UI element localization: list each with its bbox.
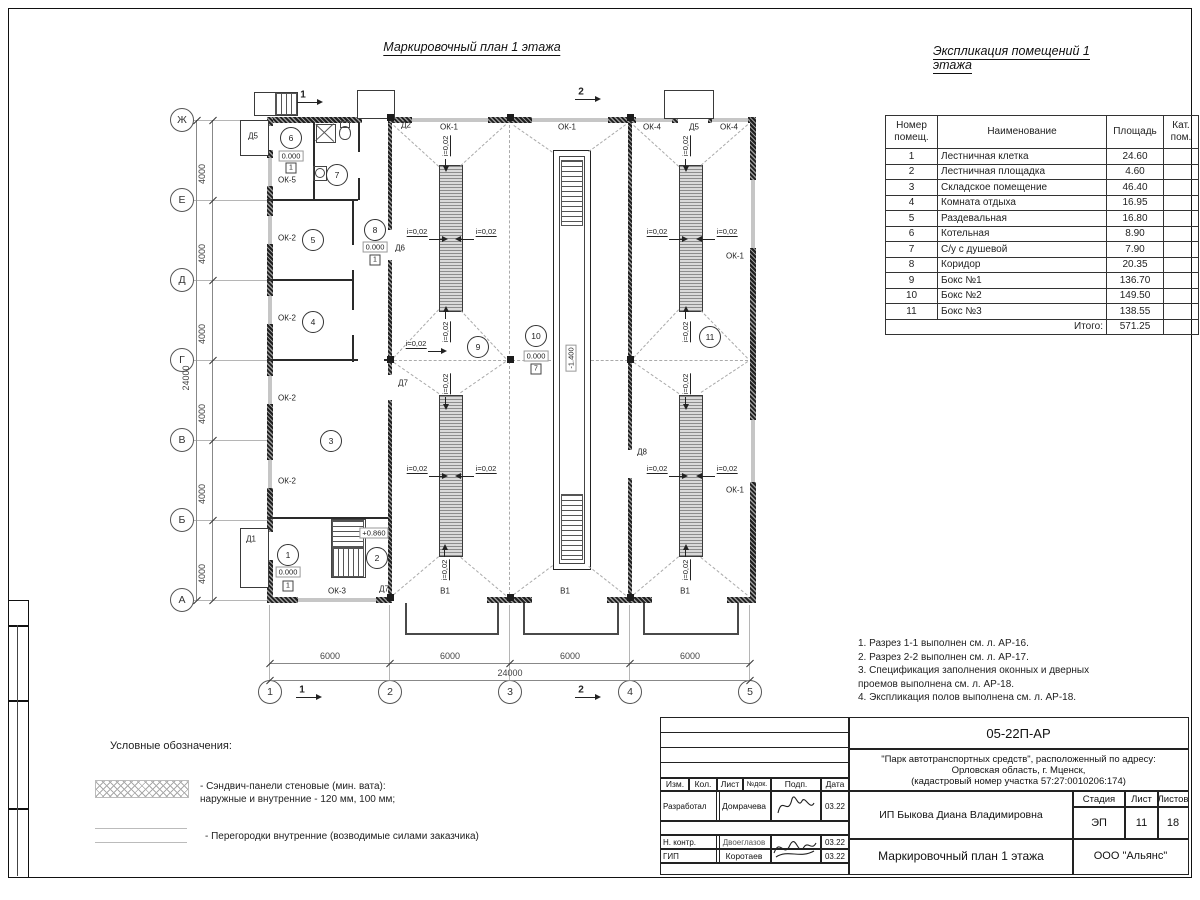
level-mark: -1.400 (566, 344, 577, 371)
slope-arrow-head (443, 404, 449, 410)
dimension-label: 6000 (440, 651, 460, 661)
slope-label: i=0,02 (717, 227, 738, 237)
slope-arrow (669, 476, 682, 477)
axis-row-line (193, 600, 267, 601)
slope-arrow (461, 476, 474, 477)
plan-label: ОК-2 (278, 394, 296, 403)
slope-label: i=0,02 (681, 136, 691, 157)
slope-arrow-head (455, 473, 461, 479)
dimension-label: 24000 (181, 365, 191, 390)
axis-row-line (193, 440, 267, 441)
axis-circle: 4 (618, 680, 642, 704)
window-segment (298, 598, 376, 602)
slope-guide-line (588, 566, 626, 596)
legend-title: Условные обозначения: (110, 740, 575, 752)
slope-arrow (444, 550, 445, 557)
partition-wall (267, 359, 358, 361)
section-mark: 2 (578, 685, 584, 696)
slope-arrow-head (683, 404, 689, 410)
legend-item-2: - Перегородки внутренние (возводимые сил… (205, 830, 479, 843)
slope-arrow-head (442, 236, 448, 242)
axis-circle: В (170, 428, 194, 452)
name-developer: Домрачева (716, 790, 772, 822)
stair-flight (332, 548, 364, 577)
plan-label: ОК-2 (278, 234, 296, 243)
slope-arrow-head (683, 306, 689, 312)
floor-type-mark: 7 (531, 364, 542, 375)
column-mark (387, 594, 394, 601)
slope-guide-line (633, 362, 679, 394)
axis-col-line (629, 605, 630, 685)
plan-label: Д7 (398, 379, 408, 388)
window-segment (712, 118, 748, 122)
slope-arrow-head (696, 473, 702, 479)
section-mark-line (296, 697, 316, 698)
level-mark: 0.000 (524, 351, 549, 362)
floor-type-mark: 1 (283, 581, 294, 592)
column-mark (387, 356, 394, 363)
slope-arrow-head (441, 348, 447, 354)
slope-label: i=0,02 (406, 339, 427, 349)
axis-col-line (749, 605, 750, 685)
section-mark: 1 (300, 90, 306, 101)
axis-circle: 3 (498, 680, 522, 704)
notes-list: 1. Разрез 1-1 выполнен см. л. АР-16.2. Р… (858, 637, 1193, 705)
section-mark-arrow (595, 96, 601, 102)
legend: Условные обозначения: - Сэндвич-панели с… (95, 740, 575, 752)
dimension-label: 4000 (197, 404, 207, 424)
stair-flight (561, 494, 583, 560)
note-item: 4. Экспликация полов выполнена см. л. АР… (858, 691, 1193, 705)
title-block: Изм. Кол. Лист №док. Подп. Дата Разработ… (660, 717, 1190, 876)
plan-label: ОК-4 (720, 123, 738, 132)
slope-guide-line (513, 125, 553, 153)
slope-guide-line (460, 361, 506, 393)
window-segment (268, 460, 272, 488)
partition-wall (358, 123, 360, 152)
wall-segment (628, 478, 632, 597)
section-mark: 1 (299, 685, 305, 696)
rev-grid (660, 717, 850, 779)
section-mark-line (575, 99, 595, 100)
partition-wall (352, 335, 354, 362)
plan-label: В1 (680, 587, 690, 596)
room-number: 9 (467, 336, 489, 358)
slope-arrow (702, 239, 715, 240)
window-segment (268, 296, 272, 324)
sheets-value: 18 (1157, 806, 1189, 840)
note-item: 2. Разрез 2-2 выполнен см. л. АР-17. (858, 651, 1193, 665)
room-number: 1 (277, 544, 299, 566)
entrance-porch (664, 90, 714, 119)
slope-arrow (685, 159, 686, 166)
slope-arrow (429, 239, 442, 240)
axis-circle: А (170, 588, 194, 612)
section-mark: 2 (578, 87, 584, 98)
slope-label: i=0,02 (476, 464, 497, 474)
column-mark (507, 356, 514, 363)
slope-guide-line (633, 556, 679, 595)
plan-label: ОК-1 (726, 486, 744, 495)
slope-label: i=0,02 (476, 227, 497, 237)
section-mark-arrow (595, 694, 601, 700)
slope-arrow-head (683, 166, 689, 172)
slope-guide-line (460, 124, 506, 166)
slope-guide-line (393, 125, 439, 167)
slope-guide-line (513, 565, 553, 595)
room-number: 7 (326, 164, 348, 186)
plan-label: Д7 (379, 585, 389, 594)
slope-arrow-head (443, 166, 449, 172)
axis-circle: Е (170, 188, 194, 212)
plan-label: ОК-4 (643, 123, 661, 132)
axis-row-line (193, 200, 267, 201)
signature-gip (770, 835, 818, 861)
wall-segment (750, 482, 756, 603)
dim-line (196, 120, 197, 600)
room-number: 10 (525, 325, 547, 347)
plan-label: ОК-1 (558, 123, 576, 132)
plan-label: В1 (440, 587, 450, 596)
level-mark: +0.860 (359, 528, 388, 539)
stair-flight (561, 160, 583, 226)
dimension-label: 6000 (560, 651, 580, 661)
slope-label: i=0,02 (681, 560, 691, 581)
partition-wall (267, 199, 358, 201)
window-segment (268, 376, 272, 404)
sheet-value: 11 (1124, 806, 1159, 840)
project-code: 05-22П-АР (848, 717, 1189, 750)
sheet-title: Маркировочный план 1 этажа (848, 838, 1074, 875)
plan-label: Д8 (637, 448, 647, 457)
slope-label: i=0,02 (440, 560, 450, 581)
slope-label: i=0,02 (647, 227, 668, 237)
dimension-label: 6000 (680, 651, 700, 661)
slope-arrow-head (682, 473, 688, 479)
slope-guide-line (460, 557, 506, 596)
window-segment (268, 216, 272, 244)
partition-wall (267, 517, 388, 519)
slope-guide-line (633, 309, 679, 358)
slope-arrow-head (683, 544, 689, 550)
slope-guide-line (394, 360, 506, 361)
column-mark (387, 114, 394, 121)
slope-arrow (429, 476, 442, 477)
partition-wall (352, 201, 354, 245)
plan-label: Д5 (248, 132, 258, 141)
dimension-label: 4000 (197, 324, 207, 344)
slope-arrow (685, 397, 686, 404)
dimension-label: 4000 (197, 164, 207, 184)
window-segment (751, 420, 755, 482)
dim-line (270, 680, 750, 681)
drawing-sheet: Маркировочный план 1 этажа Экспликация п… (0, 0, 1200, 900)
section-mark-arrow (317, 99, 323, 105)
slope-arrow (669, 239, 682, 240)
dimension-label: 4000 (197, 564, 207, 584)
role-developer: Разработал (660, 790, 720, 822)
sandwich-panel-swatch (95, 780, 189, 798)
slope-guide-line (700, 557, 748, 596)
slope-arrow (445, 312, 446, 319)
axis-circle: Д (170, 268, 194, 292)
wall-segment (750, 117, 756, 180)
slope-arrow (685, 550, 686, 557)
window-segment (751, 180, 755, 248)
room-number: 4 (302, 311, 324, 333)
axis-circle: Б (170, 508, 194, 532)
wall-segment (267, 488, 273, 532)
gate-apron (523, 603, 619, 635)
plan-label: В1 (560, 587, 570, 596)
partition-swatch (95, 828, 187, 843)
slope-label: i=0,02 (647, 464, 668, 474)
wall-segment (628, 123, 632, 450)
slope-arrow-head (442, 544, 448, 550)
rev-line (660, 762, 848, 763)
slope-arrow (428, 351, 441, 352)
empty-row (660, 862, 850, 875)
room-number: 2 (366, 547, 388, 569)
signature-developer (772, 791, 818, 819)
dimension-label: 6000 (320, 651, 340, 661)
partition-wall (358, 178, 360, 200)
wall-segment (750, 248, 756, 420)
axis-circle: 1 (258, 680, 282, 704)
dimension-label: 24000 (497, 668, 522, 678)
slope-arrow-head (442, 473, 448, 479)
wall-segment (267, 324, 273, 376)
slope-arrow-head (682, 236, 688, 242)
window-segment (412, 118, 488, 122)
washbasin-bowl (315, 168, 325, 178)
note-item: 1. Разрез 1-1 выполнен см. л. АР-16. (858, 637, 1193, 651)
slope-guide-line (591, 360, 628, 361)
slope-label: i=0,02 (407, 464, 428, 474)
slope-guide-line (393, 556, 439, 595)
room-number: 6 (280, 127, 302, 149)
level-mark: 0.000 (279, 151, 304, 162)
column-mark (507, 114, 514, 121)
section-mark-arrow (316, 694, 322, 700)
slope-arrow-head (443, 306, 449, 312)
axis-circle: Ж (170, 108, 194, 132)
slope-label: i=0,02 (681, 374, 691, 395)
plan-label: ОК-1 (440, 123, 458, 132)
slope-label: i=0,02 (681, 322, 691, 343)
note-item: 3. Спецификация заполнения оконных и две… (858, 664, 1193, 691)
dimension-label: 4000 (197, 244, 207, 264)
wall-segment (267, 186, 273, 216)
section-mark-line (575, 697, 595, 698)
plan-label: Д5 (689, 123, 699, 132)
legend-item-1: - Сэндвич-панели стеновые (мин. вата): н… (200, 780, 395, 806)
slope-guide-line (700, 361, 748, 393)
slope-arrow (445, 397, 446, 404)
plan-label: Д1 (246, 535, 256, 544)
section-mark-line (297, 102, 317, 103)
plan-label: ОК-2 (278, 477, 296, 486)
slope-arrow-head (696, 236, 702, 242)
column-mark (627, 356, 634, 363)
slope-label: i=0,02 (441, 136, 451, 157)
wall-segment (388, 123, 392, 230)
toilet-icon (339, 126, 351, 140)
slope-arrow-head (455, 236, 461, 242)
room-number: 11 (699, 326, 721, 348)
column-mark (627, 114, 634, 121)
dimension-label: 4000 (197, 484, 207, 504)
gate-apron (643, 603, 739, 635)
partition-wall (267, 279, 352, 281)
column-mark (507, 594, 514, 601)
partition-wall (352, 270, 354, 310)
slope-guide-line (634, 360, 748, 361)
level-mark: 0.000 (363, 242, 388, 253)
wall-segment (267, 244, 273, 296)
wall-segment (267, 404, 273, 460)
plan-label: ОК-1 (726, 252, 744, 261)
axis-col-line (269, 605, 270, 685)
company-name: ООО "Альянс" (1072, 838, 1189, 875)
slope-label: i=0,02 (441, 322, 451, 343)
slope-label: i=0,02 (441, 374, 451, 395)
room-number: 3 (320, 430, 342, 452)
slope-label: i=0,02 (407, 227, 428, 237)
plan-label: Д2 (401, 121, 411, 130)
axis-row-line (193, 360, 267, 361)
axis-col-line (389, 605, 390, 685)
wall-segment (388, 400, 392, 597)
slope-guide-line (588, 124, 626, 152)
window-segment (532, 118, 608, 122)
slope-arrow (702, 476, 715, 477)
plan-label: ОК-2 (278, 314, 296, 323)
slope-arrow (685, 312, 686, 319)
axis-circle: 5 (738, 680, 762, 704)
plan-label: Д6 (395, 244, 405, 253)
slope-arrow (461, 239, 474, 240)
slope-label: i=0,02 (717, 464, 738, 474)
room-number: 8 (364, 219, 386, 241)
stage-value: ЭП (1072, 806, 1126, 840)
stair-flight (275, 93, 297, 115)
partition-wall (313, 123, 315, 200)
plan-label: ОК-3 (328, 587, 346, 596)
floor-type-mark: 1 (370, 255, 381, 266)
plan-label: ОК-5 (278, 176, 296, 185)
slope-arrow (445, 159, 446, 166)
axis-row-line (193, 520, 267, 521)
window-segment (268, 158, 272, 186)
axis-row-line (193, 280, 267, 281)
level-mark: 0.000 (276, 567, 301, 578)
toilet-tank (340, 121, 350, 128)
gate-apron (405, 603, 499, 635)
rev-line (660, 732, 848, 733)
date-developer: 03.22 (820, 790, 850, 822)
floor-type-mark: 1 (286, 163, 297, 174)
room-number: 5 (302, 229, 324, 251)
axis-circle: 2 (378, 680, 402, 704)
client-name: ИП Быкова Диана Владимировна (848, 790, 1074, 840)
project-description: "Парк автотранспортных средств", располо… (848, 748, 1189, 792)
rev-line (660, 747, 848, 748)
column-mark (627, 594, 634, 601)
